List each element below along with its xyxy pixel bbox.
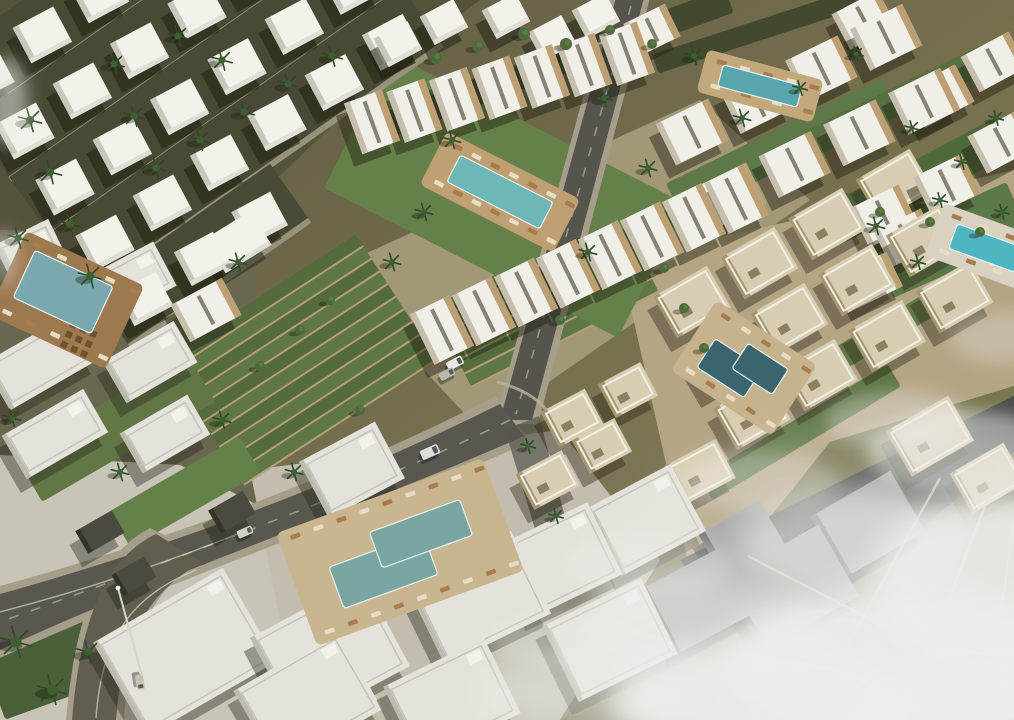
cloud: [687, 452, 837, 512]
cloud: [563, 533, 733, 597]
aerial-render: [0, 0, 1014, 720]
scene-svg: [0, 0, 1014, 720]
cloud: [490, 612, 630, 668]
cloud: [826, 390, 966, 450]
